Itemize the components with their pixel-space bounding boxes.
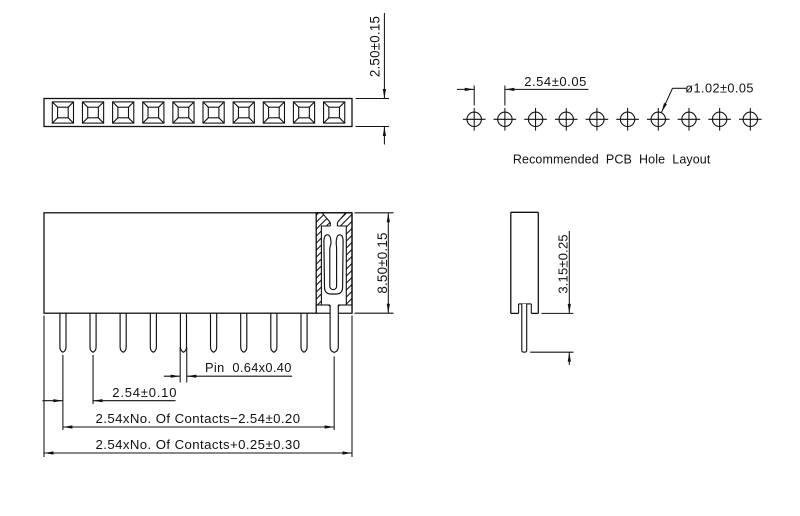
svg-text:2.54±0.10: 2.54±0.10	[112, 385, 177, 400]
svg-text:ø1.02±0.05: ø1.02±0.05	[685, 81, 754, 95]
svg-text:2.50±0.15: 2.50±0.15	[368, 16, 383, 77]
svg-text:2.54xNo. Of Contacts−2.54±0.20: 2.54xNo. Of Contacts−2.54±0.20	[96, 411, 301, 426]
svg-text:Recommended PCB Hole Layout: Recommended PCB Hole Layout	[513, 152, 711, 166]
svg-text:2.54±0.05: 2.54±0.05	[524, 74, 587, 89]
svg-text:3.15±0.25: 3.15±0.25	[556, 234, 571, 294]
svg-text:8.50±0.15: 8.50±0.15	[375, 232, 390, 293]
svg-text:Pin 0.64x0.40: Pin 0.64x0.40	[205, 360, 292, 375]
svg-text:2.54xNo. Of Contacts+0.25±0.30: 2.54xNo. Of Contacts+0.25±0.30	[96, 437, 301, 452]
